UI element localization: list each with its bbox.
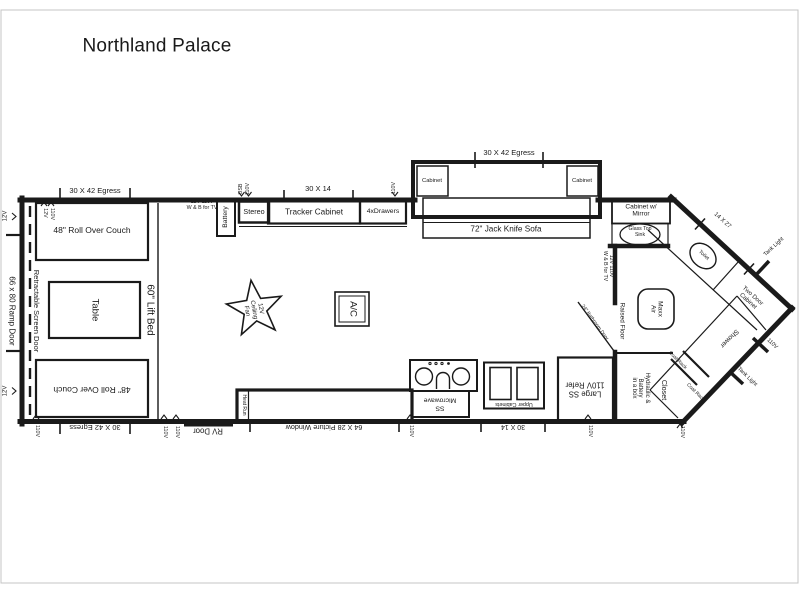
tv-hookup-right-label: 12V 110V W & B for TV bbox=[601, 251, 613, 281]
coat-rack-bar-2 bbox=[683, 351, 709, 377]
wall-cabinets bbox=[217, 199, 407, 236]
ramp-door-label: 66 x 80 Ramp Door bbox=[7, 276, 16, 345]
cabinet-divider-line bbox=[713, 261, 739, 290]
kitchen-counters bbox=[237, 358, 613, 422]
refer-110v-outlet-label: 110V bbox=[586, 425, 592, 437]
heat-run-label: Heat Run bbox=[240, 394, 246, 415]
egress-slide-label: 30 X 42 Egress bbox=[483, 149, 534, 157]
screen-door-label: Retractable Screen Door bbox=[32, 270, 40, 353]
stove-counter bbox=[410, 360, 477, 391]
sofa-slideout bbox=[413, 162, 600, 217]
refrigerator-label: Large SS 110V Refer bbox=[566, 380, 605, 397]
rv-door-label: RV Door bbox=[193, 426, 223, 435]
window-30x14-bottom-label: 30 X 14 bbox=[501, 422, 525, 430]
cabinet-left-label: Cabinet bbox=[422, 178, 442, 184]
egress-label-bottom: 30 X 42 Egress bbox=[69, 423, 120, 431]
stove-icon bbox=[416, 362, 470, 389]
left-12v-top-label: 12V bbox=[3, 211, 10, 222]
ac-label: A/C bbox=[347, 301, 358, 317]
ceiling-fan-label: 12V Ceiling Fan bbox=[241, 299, 265, 321]
closet-label: Closet bbox=[660, 380, 668, 400]
kitchen-110v-outlet-label: 110V bbox=[407, 425, 413, 437]
tv-hookup-left-label: 12V 110V W & B for TV bbox=[187, 200, 218, 212]
upper-cabinets-label: Upper Cabinets bbox=[495, 401, 532, 407]
battery-label: Battery bbox=[222, 206, 230, 228]
bathroom-fixtures bbox=[578, 200, 766, 419]
door-110v-outlet-label-2: 110V bbox=[173, 426, 179, 438]
inside-110v-outlet-label: 110V bbox=[48, 208, 54, 220]
left-12v-bottom-label: 12V bbox=[3, 386, 10, 397]
hydraulic-battery-label: Hydraulic & Battery in a box bbox=[630, 373, 650, 404]
bar-counter bbox=[237, 390, 412, 422]
inside-12v-outlet-label: 12V bbox=[41, 208, 47, 217]
door-110v-outlet-label-1: 110V bbox=[161, 426, 167, 438]
bottom-left-110v-outlet-label: 110V bbox=[33, 425, 39, 437]
top-110v-outlet-label: 110V bbox=[392, 182, 398, 194]
cabinet-door-right bbox=[517, 368, 538, 400]
picture-window-label: 64 X 28 Picture Window bbox=[286, 423, 363, 431]
maxx-air-label: Maxx Air bbox=[649, 301, 664, 317]
sofa-label: 72" Jack Knife Sofa bbox=[470, 224, 541, 233]
usb-110v-outlet-label: 110V bbox=[246, 183, 252, 195]
page-title: Northland Palace bbox=[83, 35, 232, 56]
tracker-cabinet-label: Tracker Cabinet bbox=[285, 207, 343, 216]
microwave-label: SS Microwave bbox=[424, 396, 456, 411]
lift-bed-label: 60" Lift Bed bbox=[144, 284, 155, 335]
corner-110v-outlet-label: 110V bbox=[678, 426, 684, 438]
cabinet-door-left bbox=[490, 368, 511, 400]
window-30x14-top-label: 30 X 14 bbox=[305, 185, 331, 193]
couch-bottom-label: 48" Roll Over Couch bbox=[53, 384, 130, 394]
cabinet-right-label: Cabinet bbox=[572, 178, 592, 184]
image-frame bbox=[1, 10, 798, 583]
glass-sink-label: Glass Top Sink bbox=[629, 227, 652, 239]
table-label: Table bbox=[89, 299, 100, 322]
raised-floor-label: Raised Floor bbox=[618, 303, 625, 340]
stereo-label: Stereo bbox=[243, 208, 264, 216]
mirror-cabinet-label: Cabinet w/ Mirror bbox=[625, 204, 656, 219]
couch-top-label: 48" Roll Over Couch bbox=[53, 226, 130, 236]
drawers-label: 4xDrawers bbox=[367, 208, 399, 216]
egress-label-top: 30 X 42 Egress bbox=[69, 187, 120, 195]
floorplan-drawing bbox=[0, 0, 800, 600]
floorplan-page: Northland Palace 30 X 42 Egress 48" Roll… bbox=[0, 0, 800, 600]
toilet-platform-line bbox=[648, 230, 757, 330]
